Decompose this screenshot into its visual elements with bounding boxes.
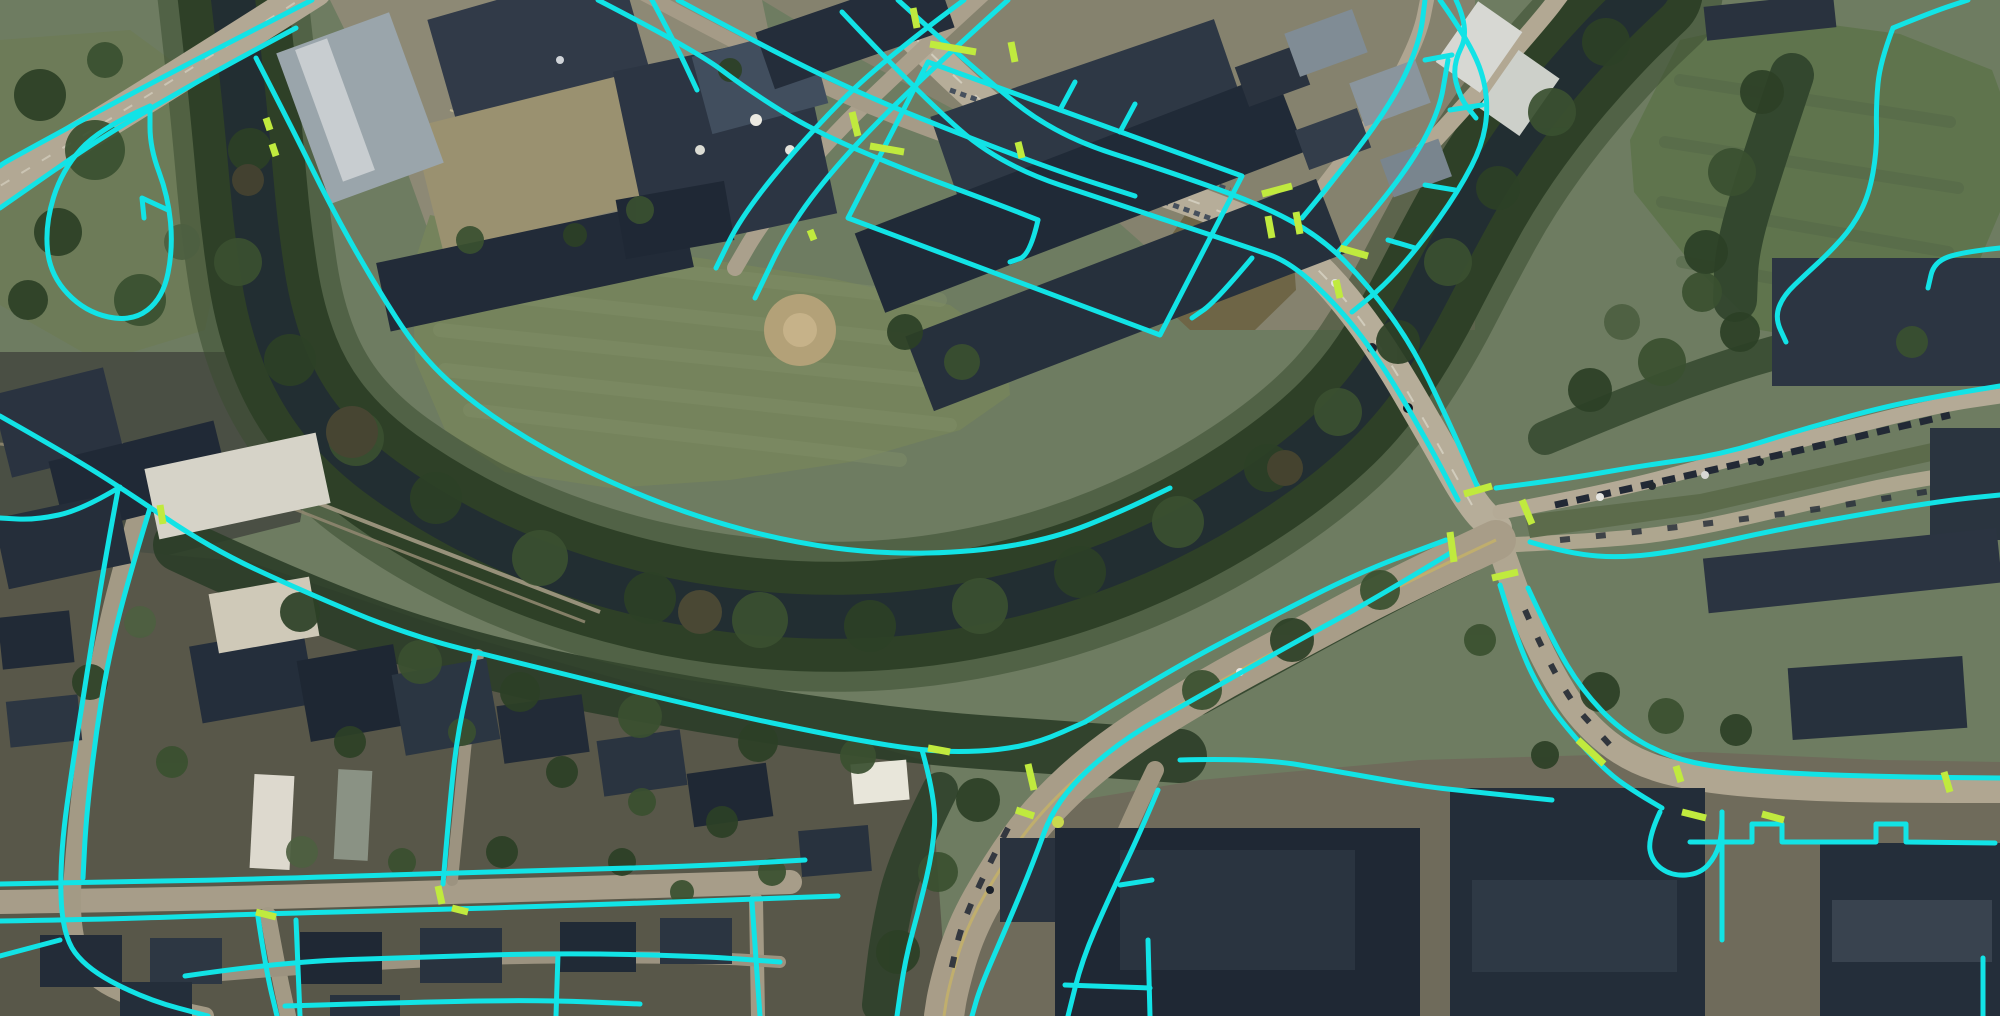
campus-spur-3[interactable]: [1148, 940, 1150, 1016]
tree-canopy: [1740, 70, 1784, 114]
tree-canopy: [626, 196, 654, 224]
tree-canopy: [1054, 546, 1106, 598]
tree-canopy: [156, 746, 188, 778]
tree-canopy: [410, 472, 462, 524]
tree-canopy: [1648, 698, 1684, 734]
map-spot: [750, 114, 762, 126]
tree-canopy: [1424, 238, 1472, 286]
building: [0, 610, 75, 669]
tree-canopy: [944, 344, 980, 380]
building: [6, 694, 82, 747]
map-spot: [986, 886, 994, 894]
map-spot: [1648, 482, 1656, 490]
tree-canopy: [14, 69, 66, 121]
tree-canopy: [628, 788, 656, 816]
tree-canopy: [1152, 496, 1204, 548]
building: [1788, 656, 1968, 740]
tree-canopy: [1682, 272, 1722, 312]
tree-canopy: [1314, 388, 1362, 436]
tree-canopy: [87, 42, 123, 78]
building: [1930, 428, 2000, 540]
tree-canopy: [844, 600, 896, 652]
crosswalk-segment[interactable]: [1296, 212, 1300, 234]
tree-canopy: [608, 848, 636, 876]
crosswalk-segment[interactable]: [913, 8, 917, 28]
tree-canopy: [1684, 230, 1728, 274]
crosswalk-segment[interactable]: [1018, 142, 1022, 158]
tree-canopy: [1604, 304, 1640, 340]
map-spot: [783, 313, 817, 347]
tree-canopy: [706, 806, 738, 838]
tree-canopy: [1720, 312, 1760, 352]
tree-canopy: [1476, 166, 1520, 210]
building: [798, 825, 872, 877]
crosswalk-segment[interactable]: [1336, 280, 1340, 298]
tree-canopy: [214, 238, 262, 286]
building: [1120, 850, 1355, 970]
map-spot: [232, 164, 264, 196]
tree-canopy: [1528, 88, 1576, 136]
map-spot: [1596, 493, 1604, 501]
map-spot: [1756, 458, 1764, 466]
crosswalk-segment[interactable]: [810, 230, 814, 240]
campus-spur-2[interactable]: [1065, 985, 1150, 988]
crosswalk-segment[interactable]: [160, 505, 163, 524]
tree-canopy: [732, 592, 788, 648]
tree-canopy: [1638, 338, 1686, 386]
tree-canopy: [618, 694, 662, 738]
tree-canopy: [738, 722, 778, 762]
map-spot: [678, 590, 722, 634]
building: [597, 729, 688, 796]
map-spot: [1267, 450, 1303, 486]
tree-canopy: [956, 778, 1000, 822]
aerial-map: [0, 0, 2000, 1016]
crosswalk-segment[interactable]: [1268, 216, 1272, 238]
tree-canopy: [456, 226, 484, 254]
tree-canopy: [388, 848, 416, 876]
crosswalk-segment[interactable]: [272, 144, 276, 156]
tree-canopy: [1582, 18, 1630, 66]
map-viewport[interactable]: [0, 0, 2000, 1016]
tree-canopy: [286, 836, 318, 868]
tree-canopy: [500, 672, 540, 712]
crosswalk-segment[interactable]: [452, 908, 468, 912]
crosswalk-segment[interactable]: [1676, 766, 1681, 782]
map-spot: [556, 56, 564, 64]
tree-canopy: [124, 606, 156, 638]
crosswalk-segment[interactable]: [438, 886, 442, 904]
tree-canopy: [1531, 741, 1559, 769]
tree-canopy: [8, 280, 48, 320]
tree-canopy: [334, 726, 366, 758]
crosswalk-segment[interactable]: [1011, 42, 1015, 62]
map-spot: [695, 145, 705, 155]
building: [334, 769, 373, 861]
map-spot: [326, 406, 378, 458]
tree-canopy: [624, 572, 676, 624]
building: [560, 922, 636, 972]
tree-canopy: [1568, 368, 1612, 412]
tree-canopy: [486, 836, 518, 868]
v558[interactable]: [556, 954, 558, 1016]
tree-canopy: [1720, 714, 1752, 746]
map-spot: [1701, 471, 1709, 479]
tree-canopy: [887, 314, 923, 350]
tree-canopy: [563, 223, 587, 247]
building: [1472, 880, 1677, 972]
crosswalk-segment[interactable]: [256, 912, 276, 917]
tree-canopy: [952, 578, 1008, 634]
crosswalk-segment[interactable]: [928, 748, 950, 752]
map-spot: [1052, 816, 1064, 828]
tree-canopy: [546, 756, 578, 788]
tree-canopy: [34, 208, 82, 256]
crosswalk-segment[interactable]: [1450, 532, 1454, 562]
tree-canopy: [264, 334, 316, 386]
tree-canopy: [1896, 326, 1928, 358]
tree-canopy: [512, 530, 568, 586]
tree-canopy: [1464, 624, 1496, 656]
tree-canopy: [398, 640, 442, 684]
building: [1832, 900, 1992, 962]
crosswalk-segment[interactable]: [266, 118, 270, 130]
tree-canopy: [1708, 148, 1756, 196]
